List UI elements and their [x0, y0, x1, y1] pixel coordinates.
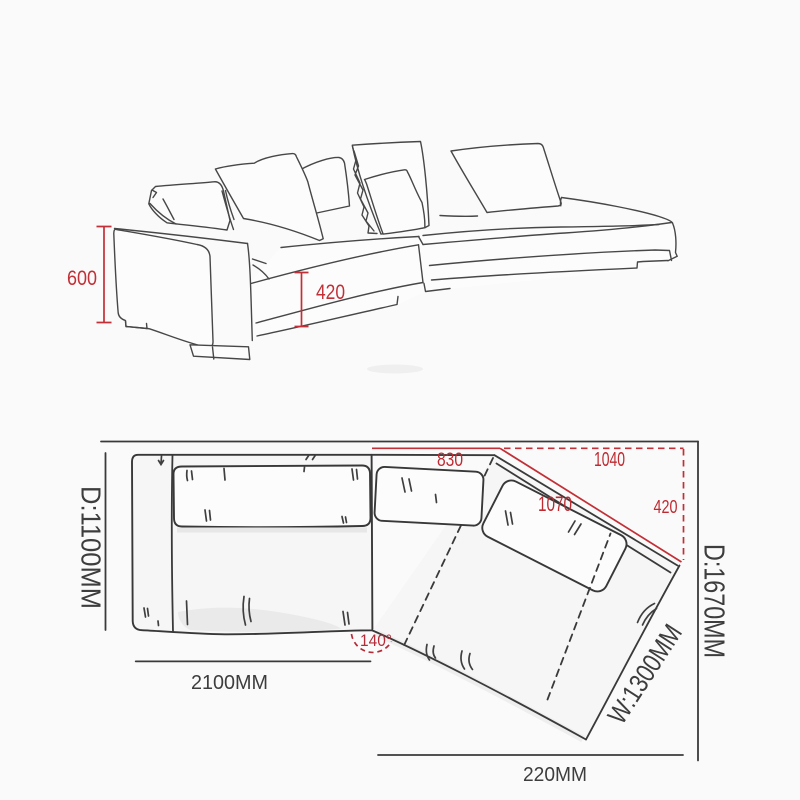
svg-text:1040: 1040	[594, 449, 625, 471]
svg-text:140°: 140°	[360, 632, 392, 650]
svg-text:D:1670MM: D:1670MM	[698, 544, 730, 658]
svg-text:1070: 1070	[538, 493, 572, 516]
svg-text:220MM: 220MM	[523, 764, 587, 786]
svg-text:420: 420	[654, 496, 678, 517]
svg-text:830: 830	[437, 450, 463, 471]
svg-text:420: 420	[316, 280, 345, 304]
svg-text:2100MM: 2100MM	[191, 671, 268, 694]
svg-text:D:1100MM: D:1100MM	[76, 486, 107, 609]
svg-text:600: 600	[67, 266, 97, 290]
